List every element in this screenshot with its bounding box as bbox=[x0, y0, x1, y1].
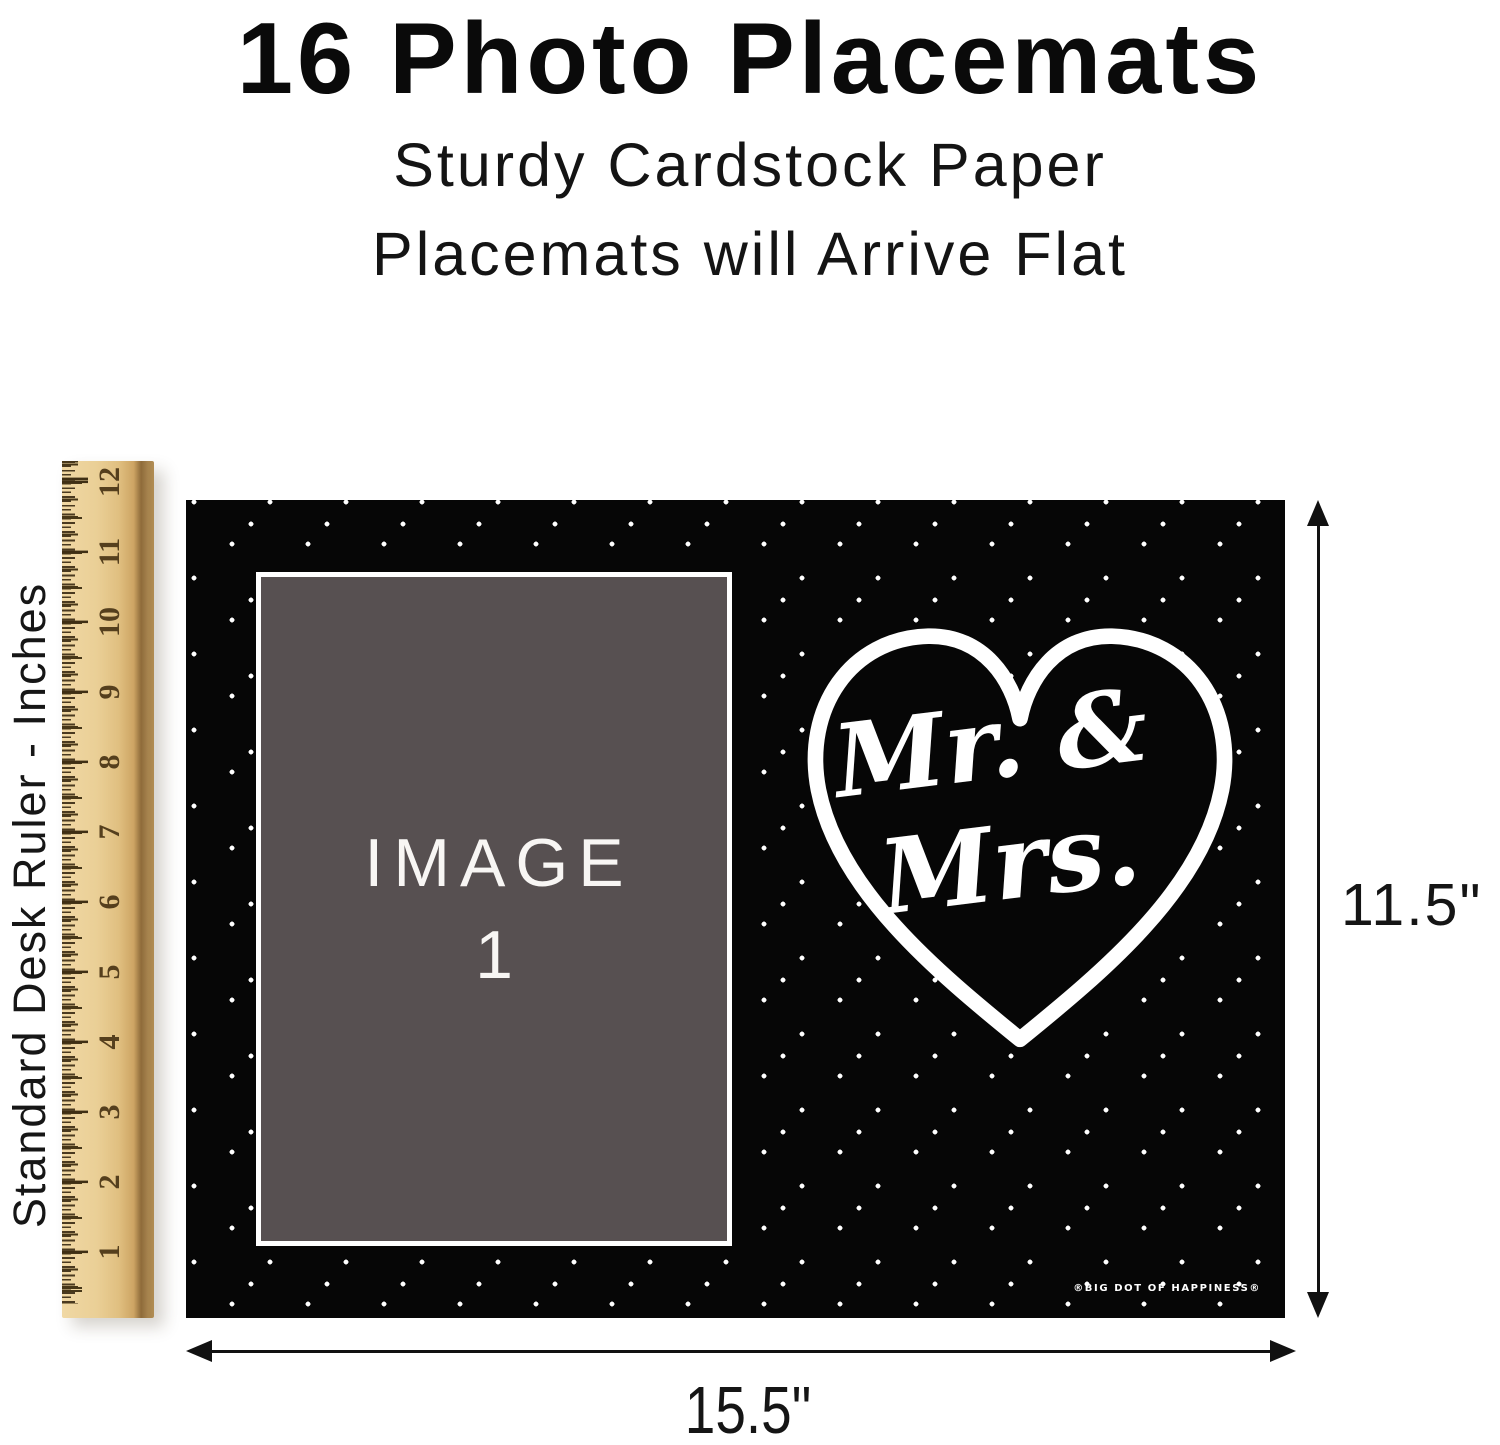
ruler-number: 8 bbox=[93, 755, 127, 770]
photo-placeholder: IMAGE 1 bbox=[256, 572, 732, 1246]
placemat-preview: IMAGE 1 Mr. & Mrs. NAME bbox=[186, 500, 1285, 1318]
subtitle-line2: Placemats will Arrive Flat bbox=[0, 219, 1500, 289]
product-infographic: 16 Photo Placemats Sturdy Cardstock Pape… bbox=[0, 0, 1500, 1445]
arrow-down-icon bbox=[1307, 1292, 1329, 1318]
height-dimension-arrow bbox=[1306, 500, 1330, 1318]
ruler-number: 4 bbox=[93, 1035, 127, 1050]
ruler-number: 12 bbox=[93, 467, 127, 497]
ruler-number: 9 bbox=[93, 685, 127, 700]
height-dimension-label: 11.5" bbox=[1341, 871, 1482, 939]
ruler-number: 1 bbox=[93, 1245, 127, 1260]
subtitle-line1: Sturdy Cardstock Paper bbox=[0, 130, 1500, 200]
ruler-number: 2 bbox=[93, 1175, 127, 1190]
ruler-number: 7 bbox=[93, 825, 127, 840]
ruler-number: 3 bbox=[93, 1105, 127, 1120]
ruler-ticks-inch bbox=[62, 461, 88, 1304]
ruler-caption: Standard Desk Ruler - Inches bbox=[4, 582, 56, 1228]
ruler-number: 11 bbox=[93, 538, 127, 566]
width-dimension-arrow bbox=[186, 1339, 1296, 1363]
brand-mark: ®BIG DOT OF HAPPINESS® bbox=[1073, 1283, 1261, 1294]
width-dimension-label: 15.5" bbox=[685, 1372, 811, 1445]
ruler-number: 10 bbox=[93, 607, 127, 637]
photo-placeholder-label: IMAGE bbox=[354, 817, 633, 909]
photo-placeholder-number: 1 bbox=[465, 909, 523, 1001]
arrow-right-icon bbox=[1270, 1340, 1296, 1362]
ruler-number: 6 bbox=[93, 895, 127, 910]
wooden-ruler-photo: 12 11 10 9 8 7 6 5 4 3 2 1 bbox=[62, 461, 154, 1318]
ruler-number: 5 bbox=[93, 965, 127, 980]
page-title: 16 Photo Placemats bbox=[0, 2, 1500, 117]
heart-graphic: Mr. & Mrs. bbox=[790, 585, 1250, 1055]
